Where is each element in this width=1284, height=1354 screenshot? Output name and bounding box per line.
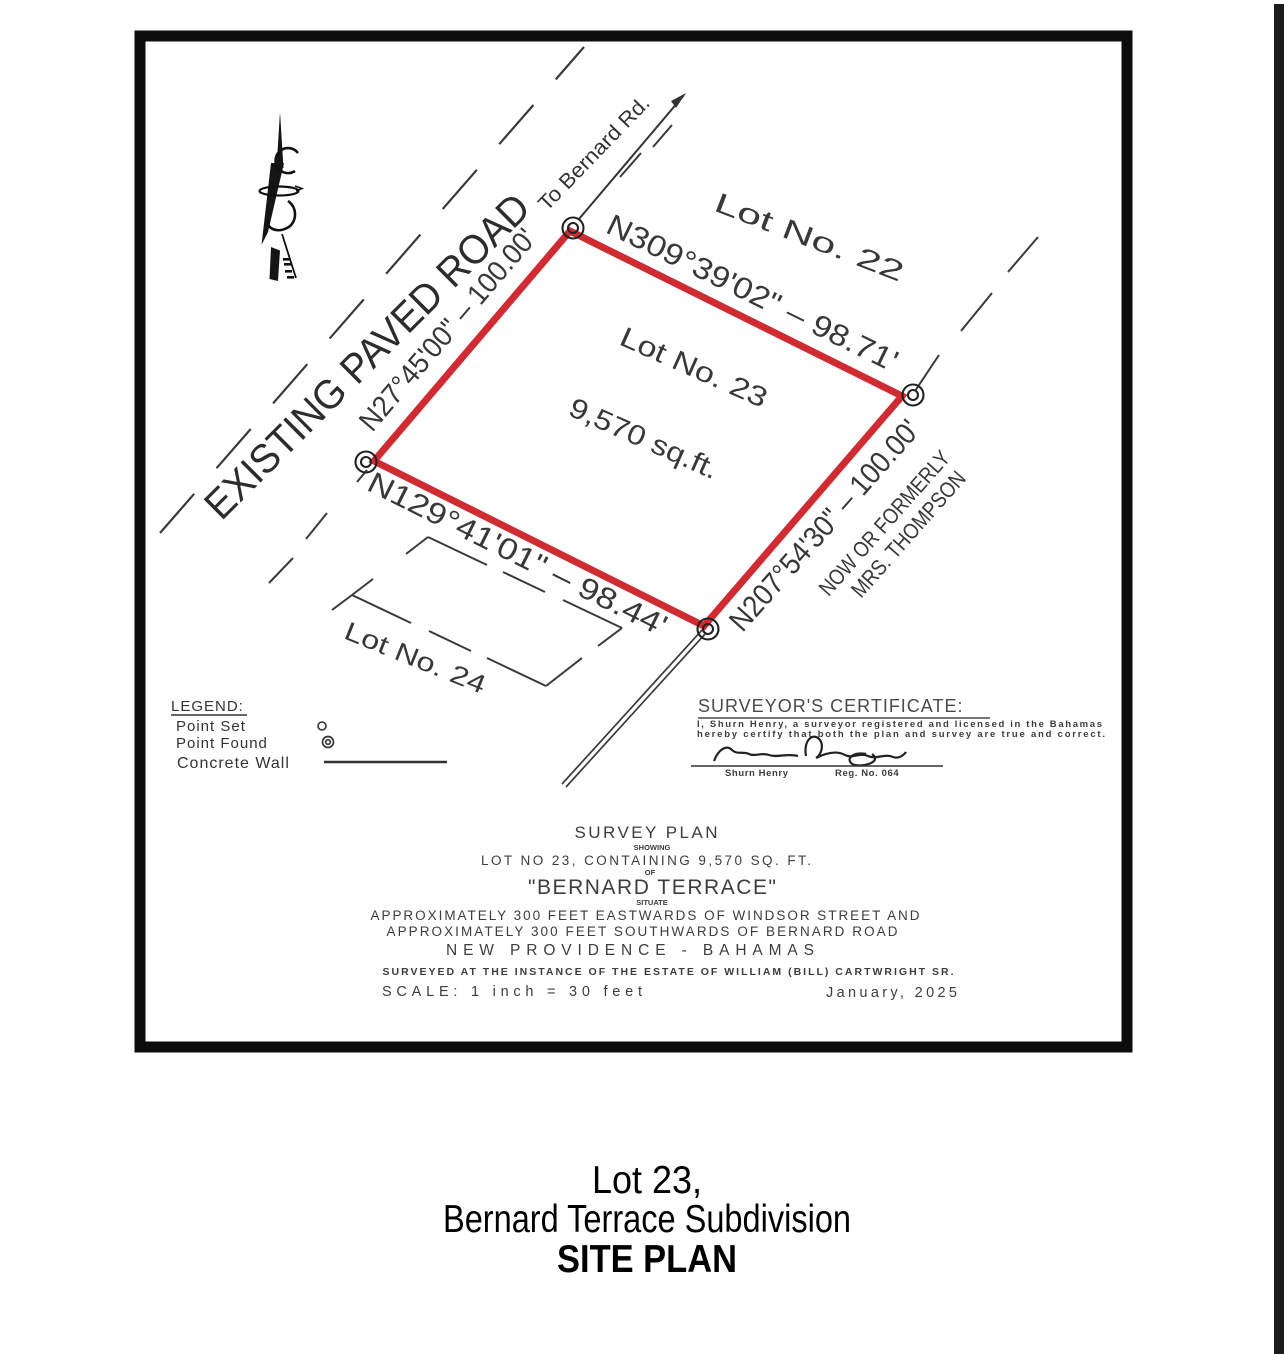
svg-text:NEW PROVIDENCE - BAH: NEW PROVIDENCE - BAHAMAS xyxy=(446,942,814,959)
svg-text:"BERNARD TERRACE": "BERNARD TERRACE" xyxy=(528,876,776,899)
svg-text:SITE PLAN: SITE PLAN xyxy=(557,1238,737,1281)
svg-text:SURVEY PLAN: SURVEY PLAN xyxy=(575,823,718,842)
svg-text:Point Set: Point Set xyxy=(176,718,246,735)
svg-text:SITUATE: SITUATE xyxy=(636,898,668,907)
svg-text:LEGEND:: LEGEND: xyxy=(171,698,244,715)
svg-text:SHOWING: SHOWING xyxy=(634,843,671,852)
svg-text:Concrete Wall: Concrete Wall xyxy=(177,755,290,772)
svg-text:Lot 23,: Lot 23, xyxy=(592,1159,702,1202)
svg-text:Bernard Terrace Subdivision: Bernard Terrace Subdivision xyxy=(443,1198,851,1241)
svg-text:hereby certify that both the p: hereby certify that both the plan and su… xyxy=(697,729,1105,740)
svg-text:Reg. No. 064: Reg. No. 064 xyxy=(835,768,899,779)
svg-text:Shurn Henry: Shurn Henry xyxy=(725,768,789,779)
svg-text:SURVEYOR'S CERTIFICATE:: SURVEYOR'S CERTIFICATE: xyxy=(698,696,963,716)
svg-text:Point Found: Point Found xyxy=(176,735,268,752)
